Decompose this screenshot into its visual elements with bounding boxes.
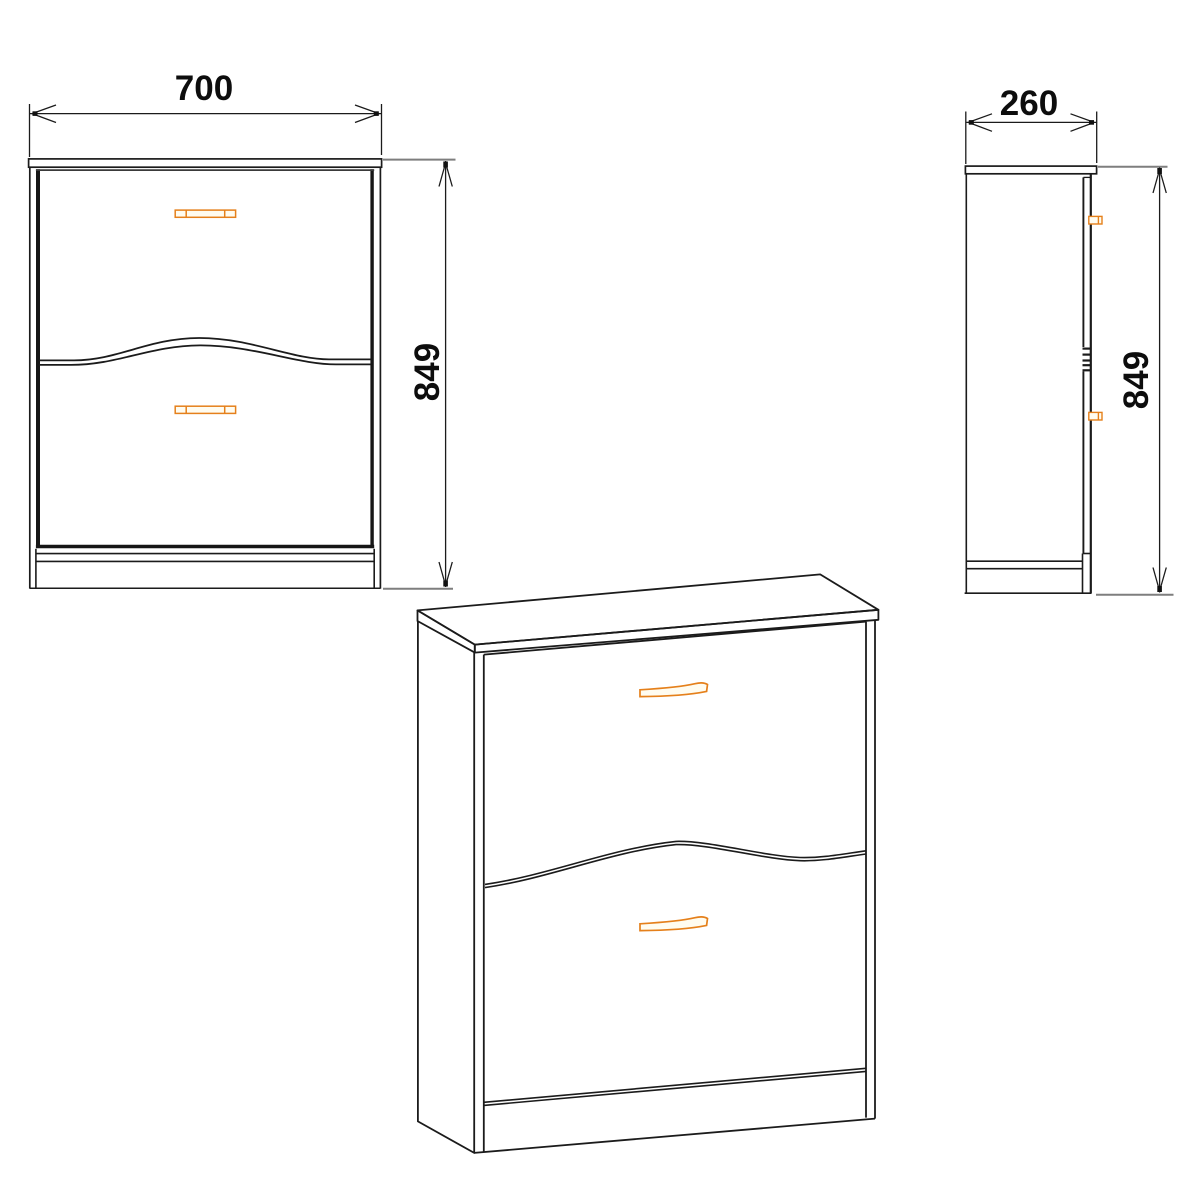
svg-text:700: 700: [175, 69, 233, 108]
svg-text:260: 260: [1000, 84, 1058, 123]
svg-text:849: 849: [408, 343, 447, 401]
svg-text:849: 849: [1117, 351, 1156, 409]
